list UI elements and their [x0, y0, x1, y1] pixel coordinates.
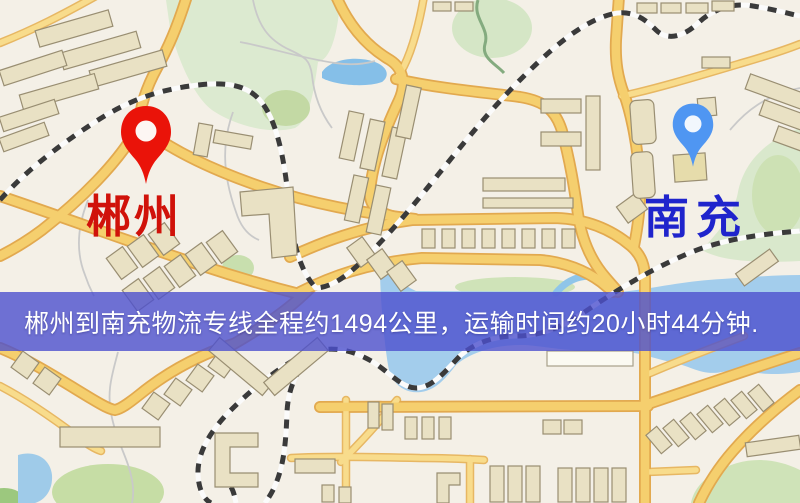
origin-city-label: 郴州 [86, 180, 182, 245]
destination-pin-icon[interactable] [670, 102, 716, 170]
route-info-banner: 郴州到南充物流专线全程约1494公里，运输时间约20小时44分钟. [0, 292, 800, 351]
origin-pin-icon[interactable] [118, 104, 174, 188]
map-background [0, 0, 800, 503]
destination-city-label: 南充 [644, 181, 748, 246]
blue-map-pin-icon [670, 102, 716, 170]
map: 郴州 南充 郴州到南充物流专线全程约1494公里，运输时间约20小时44分钟. [0, 0, 800, 503]
red-map-pin-icon [118, 104, 174, 188]
route-info-text: 郴州到南充物流专线全程约1494公里，运输时间约20小时44分钟. [0, 304, 759, 340]
